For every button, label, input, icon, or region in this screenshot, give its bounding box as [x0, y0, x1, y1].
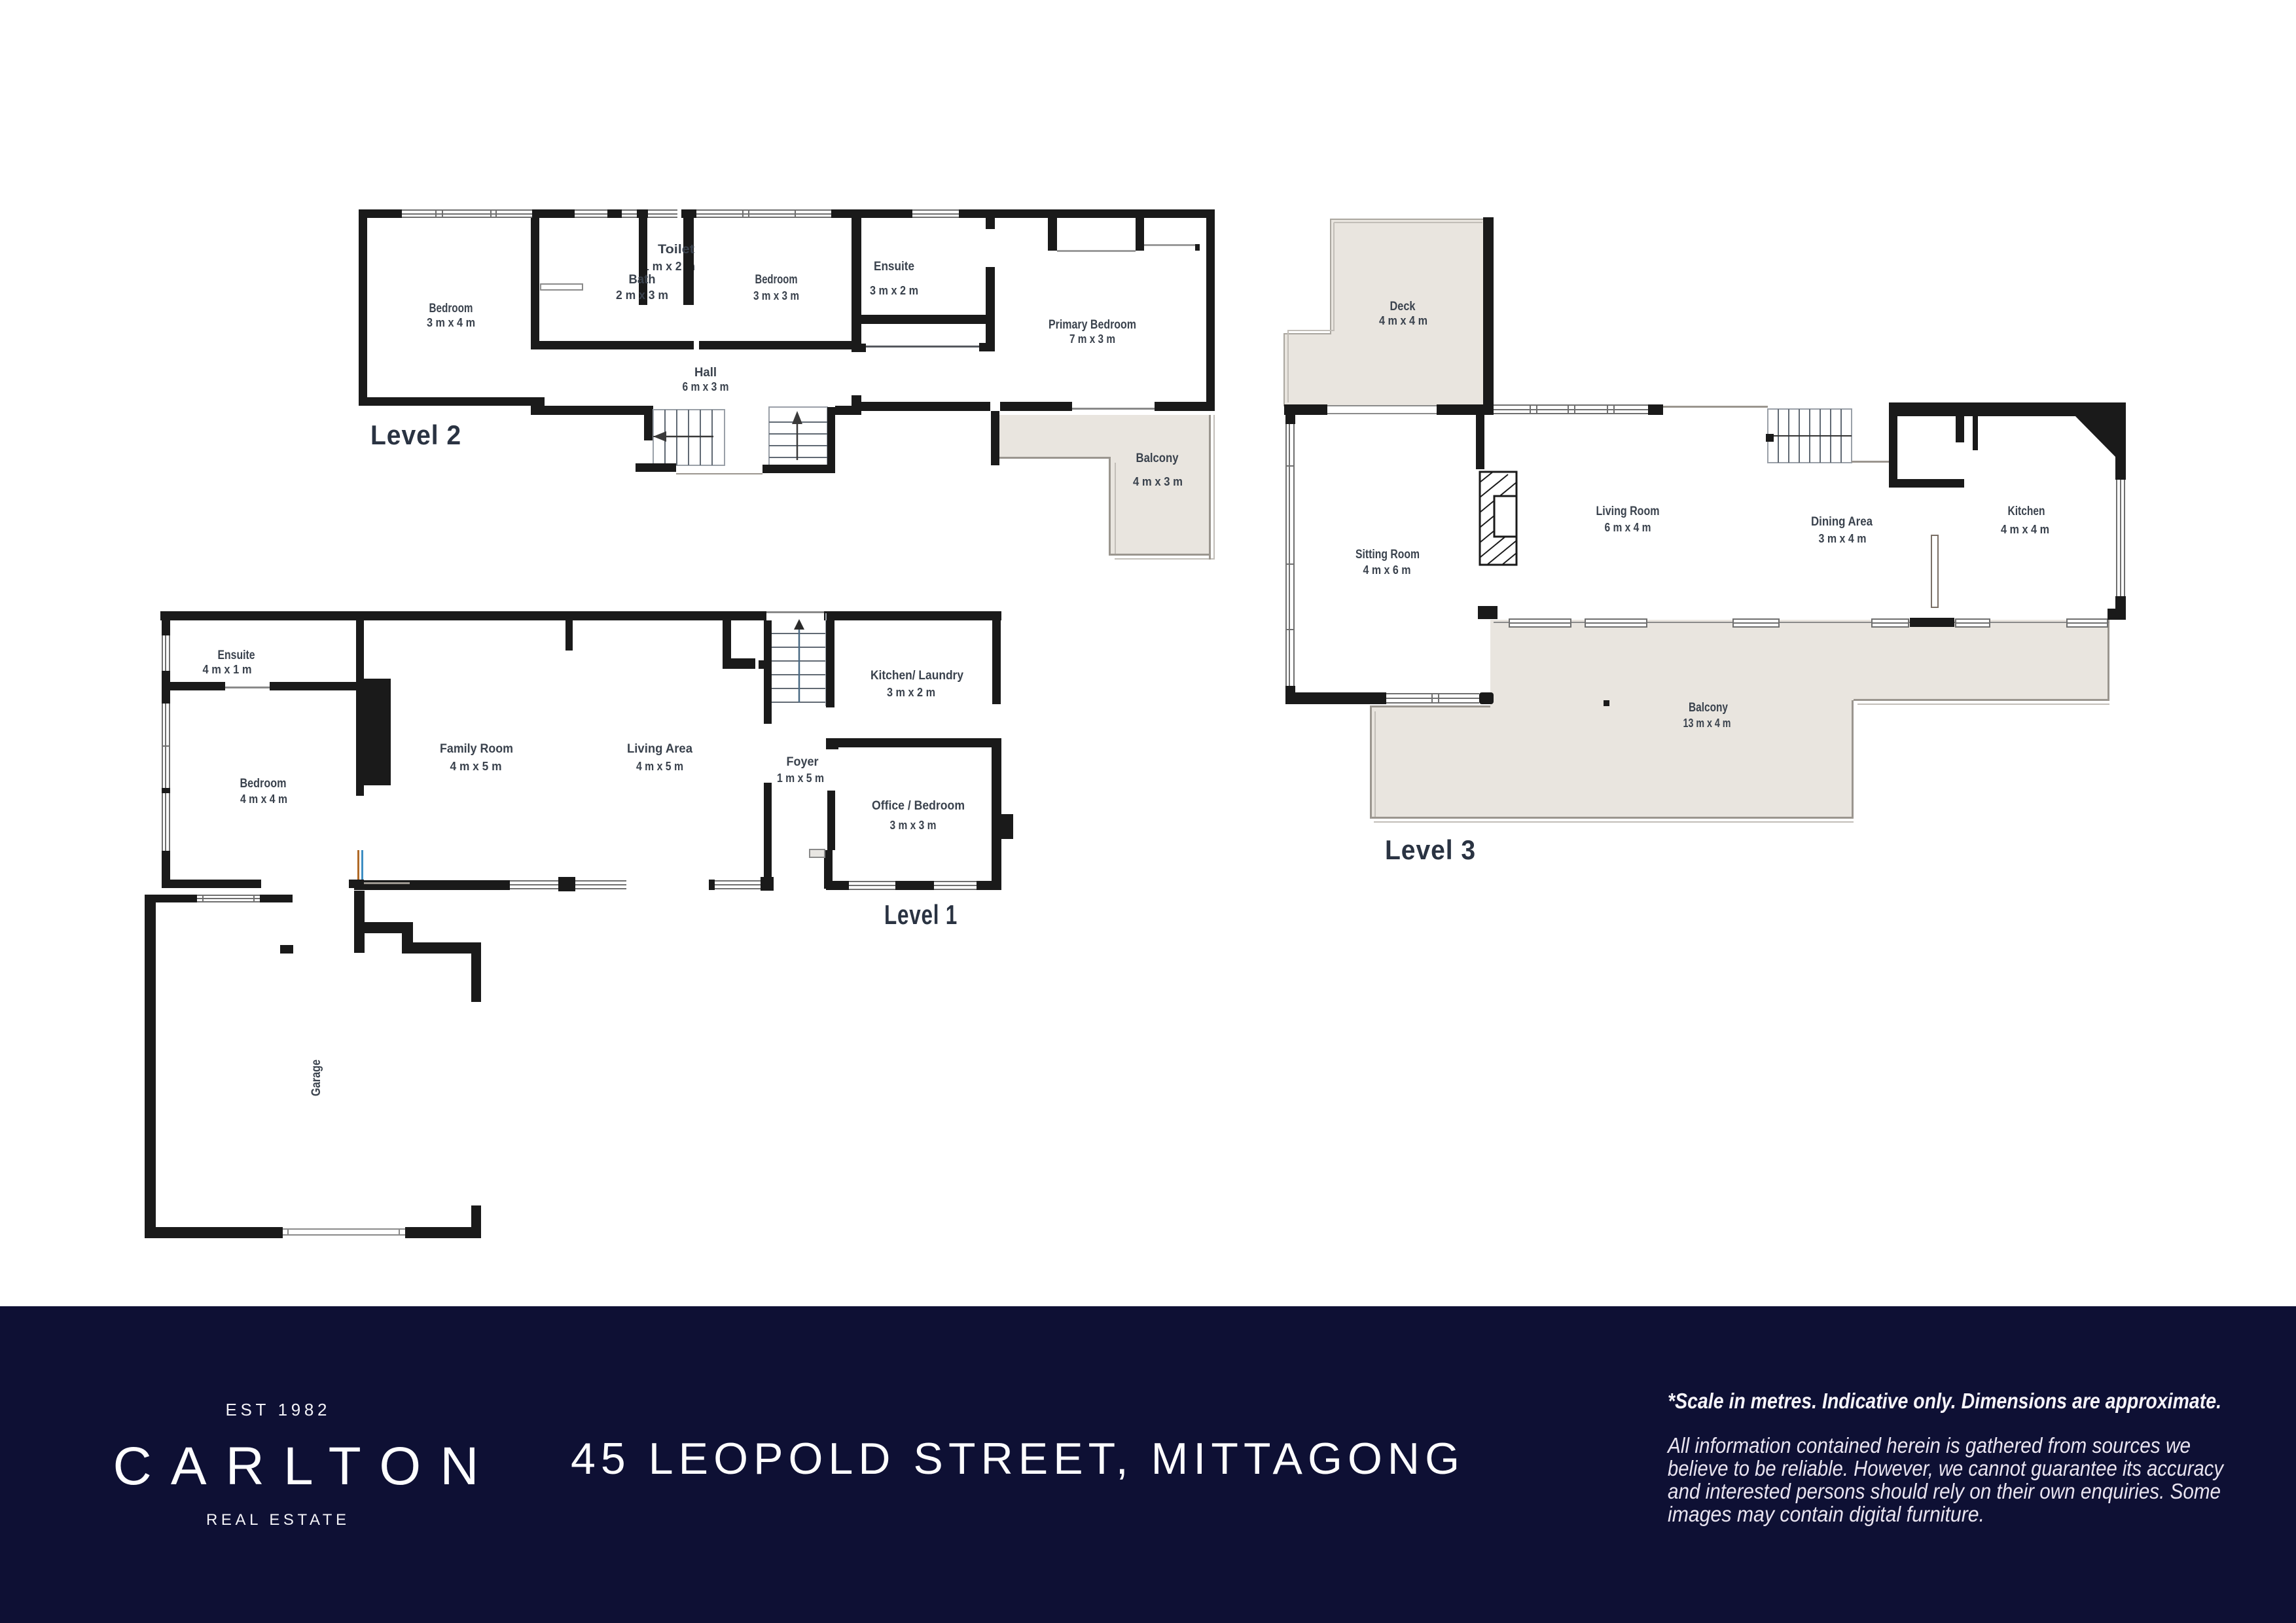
svg-text:3 m x 3 m: 3 m x 3 m: [890, 819, 937, 832]
svg-text:Level 1: Level 1: [884, 899, 958, 930]
svg-text:Deck: Deck: [1390, 300, 1416, 313]
svg-text:Bedroom: Bedroom: [429, 302, 473, 315]
svg-text:4 m x 4 m: 4 m x 4 m: [2001, 523, 2049, 536]
svg-text:4 m x 5 m: 4 m x 5 m: [636, 760, 683, 773]
svg-text:6 m x 3 m: 6 m x 3 m: [683, 380, 729, 393]
svg-text:Foyer: Foyer: [787, 755, 819, 769]
svg-text:images may contain digital fur: images may contain digital furniture.: [1668, 1502, 1984, 1526]
svg-text:4 m x 3 m: 4 m x 3 m: [1133, 475, 1183, 488]
svg-text:3 m x 2 m: 3 m x 2 m: [870, 284, 918, 297]
svg-text:Balcony: Balcony: [1136, 452, 1179, 465]
svg-text:4 m x 6 m: 4 m x 6 m: [1363, 563, 1411, 577]
svg-text:Primary Bedroom: Primary Bedroom: [1049, 318, 1136, 332]
svg-text:2 m x 3 m: 2 m x 3 m: [616, 289, 668, 302]
svg-text:Kitchen/ Laundry: Kitchen/ Laundry: [870, 669, 963, 683]
svg-text:3 m x 4 m: 3 m x 4 m: [427, 316, 475, 329]
svg-text:6 m x 4 m: 6 m x 4 m: [1605, 521, 1651, 534]
svg-text:7 m x 3 m: 7 m x 3 m: [1069, 332, 1115, 346]
svg-text:Level 2: Level 2: [370, 419, 461, 450]
svg-text:REAL ESTATE: REAL ESTATE: [206, 1511, 346, 1529]
svg-text:4 m x 4 m: 4 m x 4 m: [240, 793, 287, 806]
svg-text:Living Room: Living Room: [1596, 505, 1660, 518]
svg-text:Ensuite: Ensuite: [874, 260, 914, 274]
svg-text:Balcony: Balcony: [1689, 701, 1728, 715]
svg-text:All information contained here: All information contained herein is gath…: [1666, 1433, 2191, 1457]
svg-text:13 m x 4 m: 13 m x 4 m: [1683, 717, 1731, 730]
svg-text:Level 3: Level 3: [1385, 834, 1476, 865]
svg-text:Sitting Room: Sitting Room: [1355, 548, 1420, 562]
svg-text:3 m x 3 m: 3 m x 3 m: [753, 289, 799, 302]
svg-text:Bedroom: Bedroom: [240, 777, 287, 791]
svg-text:Office / Bedroom: Office / Bedroom: [872, 799, 965, 813]
svg-text:3 m x 4 m: 3 m x 4 m: [1819, 532, 1867, 545]
svg-text:Garage: Garage: [310, 1060, 323, 1096]
svg-text:Family Room: Family Room: [440, 742, 513, 756]
svg-text:Kitchen: Kitchen: [2008, 505, 2045, 518]
svg-text:believe to be reliable. Howeve: believe to be reliable. However, we cann…: [1668, 1456, 2225, 1480]
svg-text:Bath: Bath: [629, 273, 656, 287]
svg-text:Toilet: Toilet: [658, 243, 695, 257]
svg-text:Bedroom: Bedroom: [755, 273, 798, 287]
svg-text:1 m x 5 m: 1 m x 5 m: [777, 772, 824, 785]
svg-text:4 m x 5 m: 4 m x 5 m: [450, 760, 502, 773]
svg-text:Dining Area: Dining Area: [1811, 515, 1873, 529]
svg-text:Living Area: Living Area: [627, 742, 692, 756]
svg-text:3 m x 2 m: 3 m x 2 m: [887, 686, 935, 699]
svg-text:4 m x 4 m: 4 m x 4 m: [1379, 314, 1427, 327]
svg-text:Ensuite: Ensuite: [218, 649, 255, 662]
svg-text:*Scale in metres. Indicative o: *Scale in metres. Indicative only. Dimen…: [1668, 1389, 2221, 1413]
svg-text:4 m x 1 m: 4 m x 1 m: [203, 663, 252, 676]
svg-text:Hall: Hall: [694, 366, 717, 380]
svg-text:and interested persons should: and interested persons should rely on th…: [1668, 1479, 2221, 1503]
